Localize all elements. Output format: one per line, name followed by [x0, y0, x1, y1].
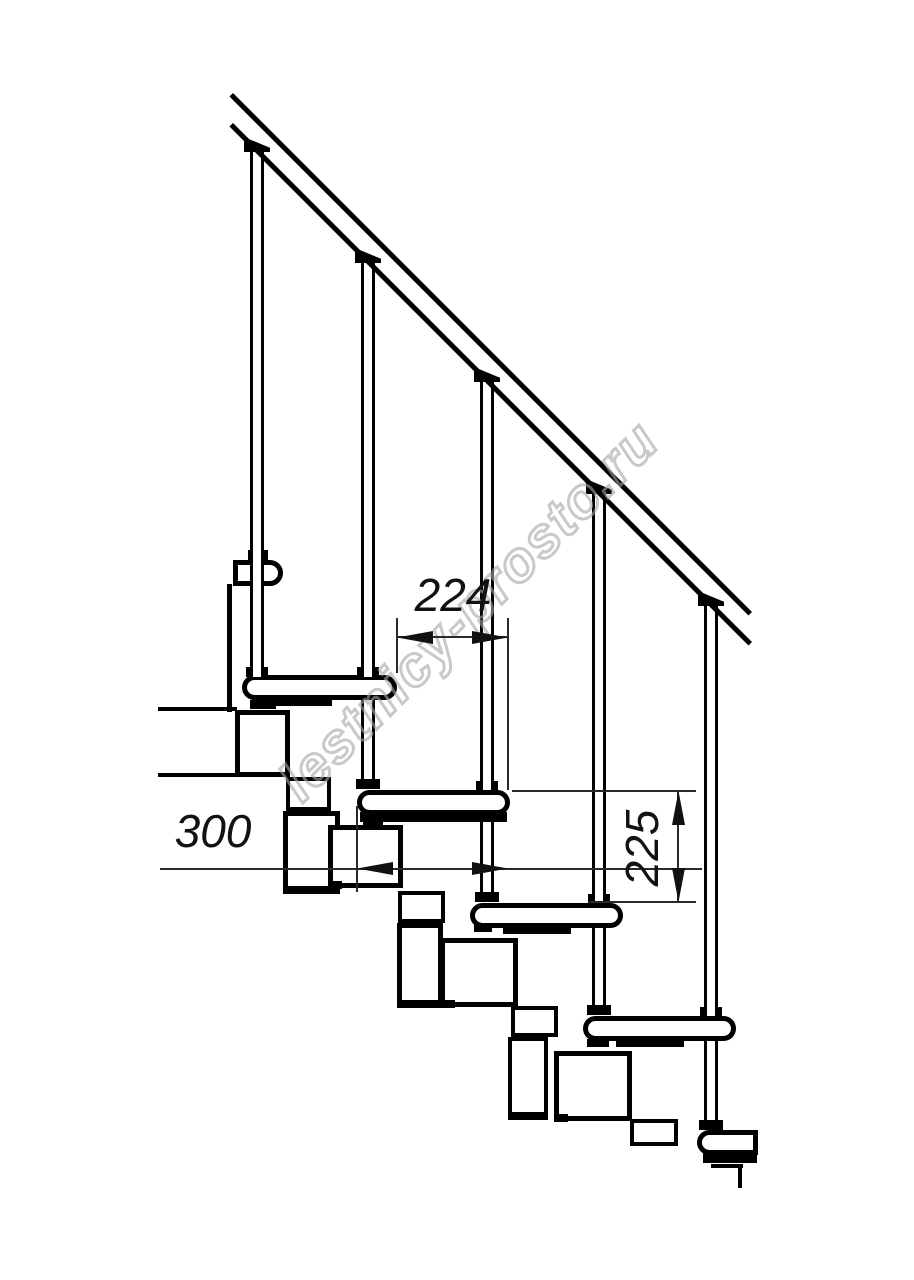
- module-connector-3: [511, 1006, 558, 1037]
- tread5-underplate: [703, 1152, 735, 1163]
- module-foot-3b: [508, 1112, 548, 1120]
- baluster-4: [592, 492, 606, 903]
- dim224-ext-left: [396, 618, 398, 673]
- baluster-5: [704, 604, 718, 1016]
- tread1-nub: [250, 700, 276, 709]
- dim225-arrow-down: [672, 868, 685, 902]
- module-foot-4: [554, 1114, 568, 1122]
- module-foot-2b: [397, 1000, 443, 1008]
- dim224-ext-right: [507, 618, 509, 790]
- tread-4: [583, 1016, 736, 1041]
- module-lower-2: [397, 923, 443, 1007]
- landing-cut-line-top: [158, 707, 237, 711]
- module-connector-2: [398, 891, 445, 923]
- dim225-label: 225: [619, 803, 665, 893]
- module-lower-3: [508, 1037, 548, 1119]
- module-under-tread-2: [328, 825, 403, 888]
- stud-tread3-to-tread4: [592, 926, 606, 1011]
- dim225-ext-top: [512, 790, 696, 792]
- baluster-1: [250, 150, 264, 677]
- dim224-label: 224: [398, 572, 508, 618]
- module-under-tread-4: [554, 1051, 632, 1121]
- module-under-tread-3: [440, 938, 518, 1007]
- stud-collar-3: [587, 1005, 611, 1015]
- dim225-ext-bottom: [589, 901, 696, 903]
- tread5-block: [735, 1150, 757, 1163]
- baluster-2: [361, 261, 375, 677]
- tread-2: [357, 790, 510, 815]
- stud-tread4-to-tread5: [704, 1039, 718, 1125]
- tread5-step-line-v: [738, 1164, 742, 1188]
- staircase-technical-drawing: lestnicy-prosto.ru 224 300 225: [0, 0, 914, 1280]
- module-connector-4: [630, 1119, 678, 1146]
- stud-tread2-to-tread3: [480, 813, 494, 897]
- tread-3: [470, 903, 623, 928]
- tread2-nub: [363, 820, 383, 827]
- stud-collar-4: [699, 1120, 723, 1130]
- upper-flight-column-line: [227, 584, 232, 712]
- stud-collar-1: [356, 779, 380, 789]
- dim225-arrow-up: [672, 791, 685, 825]
- dim300-ext-left: [356, 806, 358, 892]
- dim300-label: 300: [168, 808, 258, 854]
- module-foot-2: [328, 881, 342, 889]
- module-foot-3: [440, 1000, 455, 1008]
- stud-collar-2: [475, 892, 499, 902]
